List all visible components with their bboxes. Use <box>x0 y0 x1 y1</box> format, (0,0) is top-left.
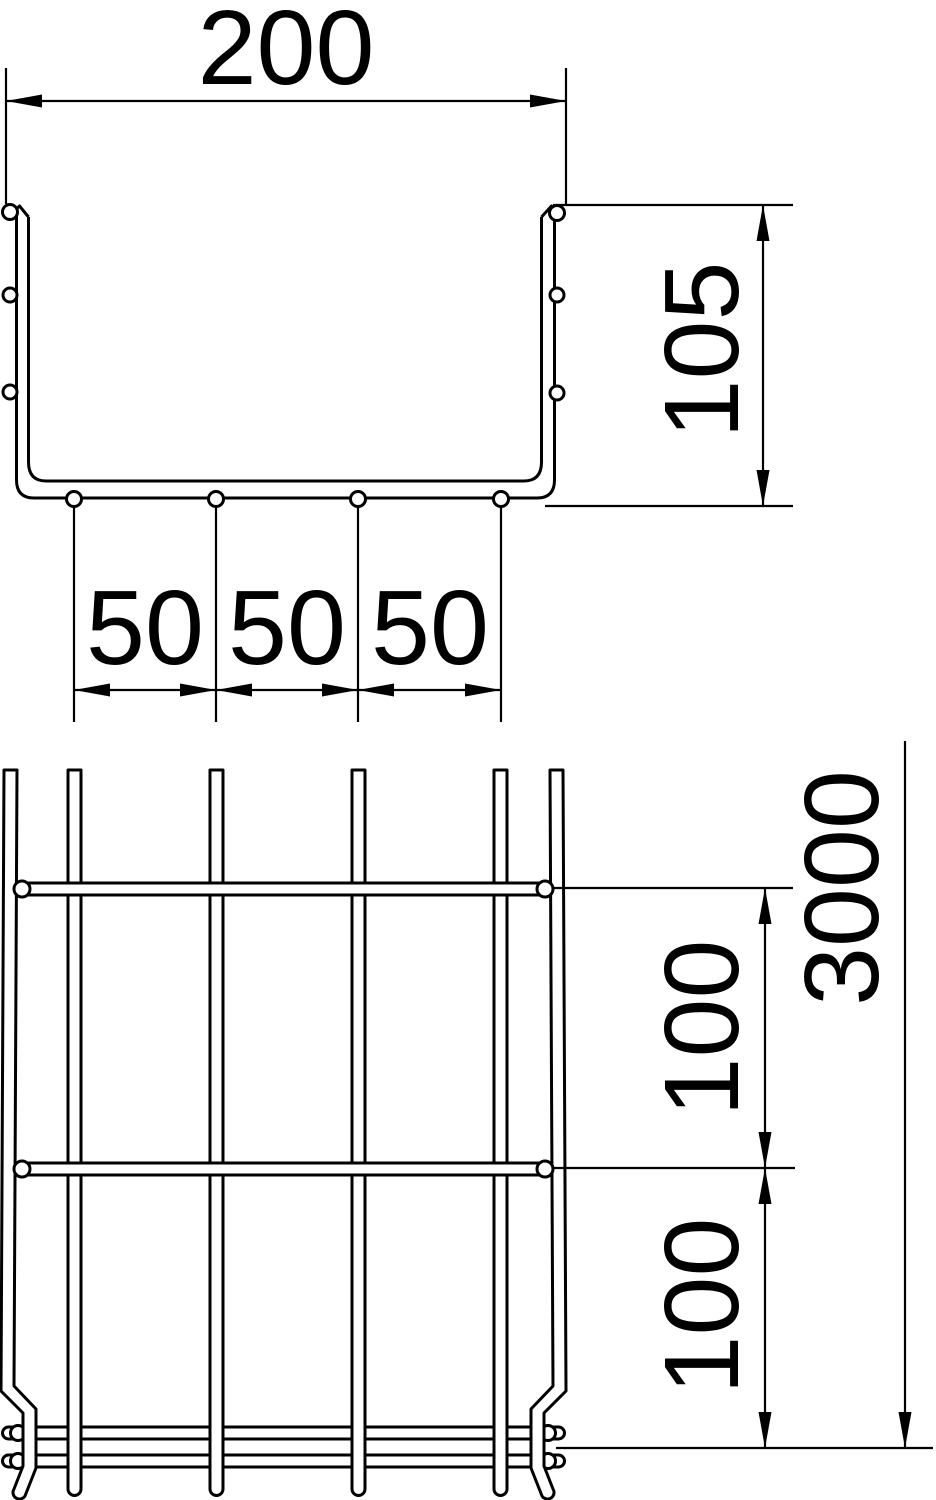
left-wall-wire-end <box>3 288 17 302</box>
drawing-canvas: 200 105 50 50 50 <box>0 0 936 1500</box>
left-wall-wire-end <box>3 205 18 220</box>
longitudinal-wire <box>352 770 365 1496</box>
longitudinal-wire <box>68 770 81 1496</box>
longitudinal-wire <box>210 770 223 1496</box>
right-wall-wire-end <box>550 206 565 221</box>
right-wall-wire-end <box>550 288 564 302</box>
left-wall-wire-end <box>3 385 17 399</box>
dim-rung-spacing-top-label: 100 <box>643 940 761 1117</box>
bottom-wire-section <box>67 492 82 507</box>
bottom-wire-section <box>494 492 509 507</box>
cross-rung-body <box>22 883 545 895</box>
end-rung-upper <box>3 1427 565 1439</box>
dim-length-label: 3000 <box>783 770 901 1006</box>
dim-spacing-label-1: 50 <box>86 569 204 687</box>
dim-width-label: 200 <box>198 0 375 107</box>
longitudinal-wire <box>494 770 507 1496</box>
cross-rung-end <box>14 881 30 897</box>
end-rung-lower <box>3 1455 565 1467</box>
cross-rung-2 <box>14 1161 553 1177</box>
dim-height-label: 105 <box>643 262 761 439</box>
dim-spacing-label-3: 50 <box>371 569 489 687</box>
technical-drawing: 200 105 50 50 50 <box>0 0 936 1500</box>
cross-rung-body <box>22 1163 545 1175</box>
cross-rung-end <box>537 1161 553 1177</box>
bottom-wire-section <box>351 492 366 507</box>
cross-rung-1 <box>14 881 553 897</box>
bottom-wire-section <box>209 492 224 507</box>
cross-rung-end <box>14 1161 30 1177</box>
right-wall-wire-end <box>550 386 564 400</box>
dim-spacing-label-2: 50 <box>228 569 346 687</box>
background <box>0 0 936 1500</box>
cross-rung-end <box>537 881 553 897</box>
dim-rung-spacing-bottom-label: 100 <box>643 1218 761 1395</box>
